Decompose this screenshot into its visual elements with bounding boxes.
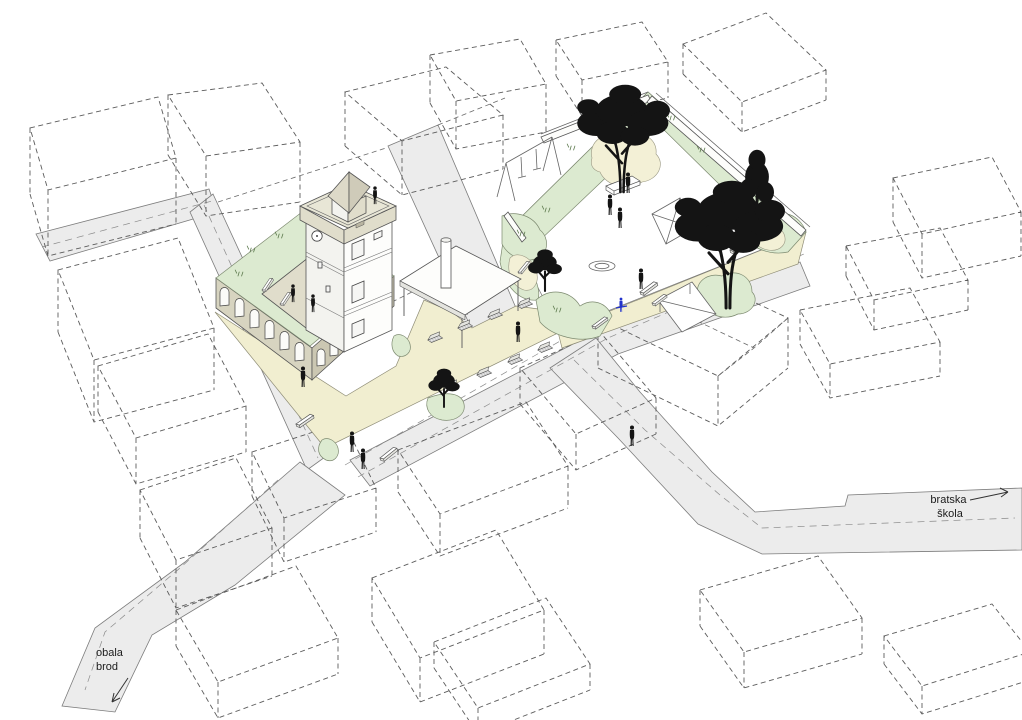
road-obala-brod — [62, 462, 345, 712]
road-bratska-skola — [550, 338, 1022, 554]
road-network — [36, 98, 1022, 712]
context-building-outline — [884, 604, 1022, 714]
context-buildings — [30, 13, 1022, 720]
deck-chair — [538, 342, 553, 353]
column-top — [441, 238, 451, 242]
tower-building — [300, 172, 396, 352]
person-figure — [350, 431, 355, 452]
context-building-outline — [800, 288, 940, 398]
context-building-outline — [434, 598, 590, 720]
context-building-outline — [372, 530, 544, 702]
tree-mound-plaza — [427, 394, 464, 421]
context-building-outline — [58, 238, 214, 422]
context-building-outline — [846, 228, 968, 330]
context-building-outline — [430, 39, 546, 149]
clock-center — [316, 235, 318, 237]
context-building-outline — [683, 13, 826, 132]
column — [441, 240, 451, 288]
site-axonometric-diagram: bratska škola obala brod — [0, 0, 1022, 720]
road-top-left — [36, 189, 217, 261]
context-building-outline — [98, 334, 246, 484]
context-building-outline — [700, 556, 862, 688]
